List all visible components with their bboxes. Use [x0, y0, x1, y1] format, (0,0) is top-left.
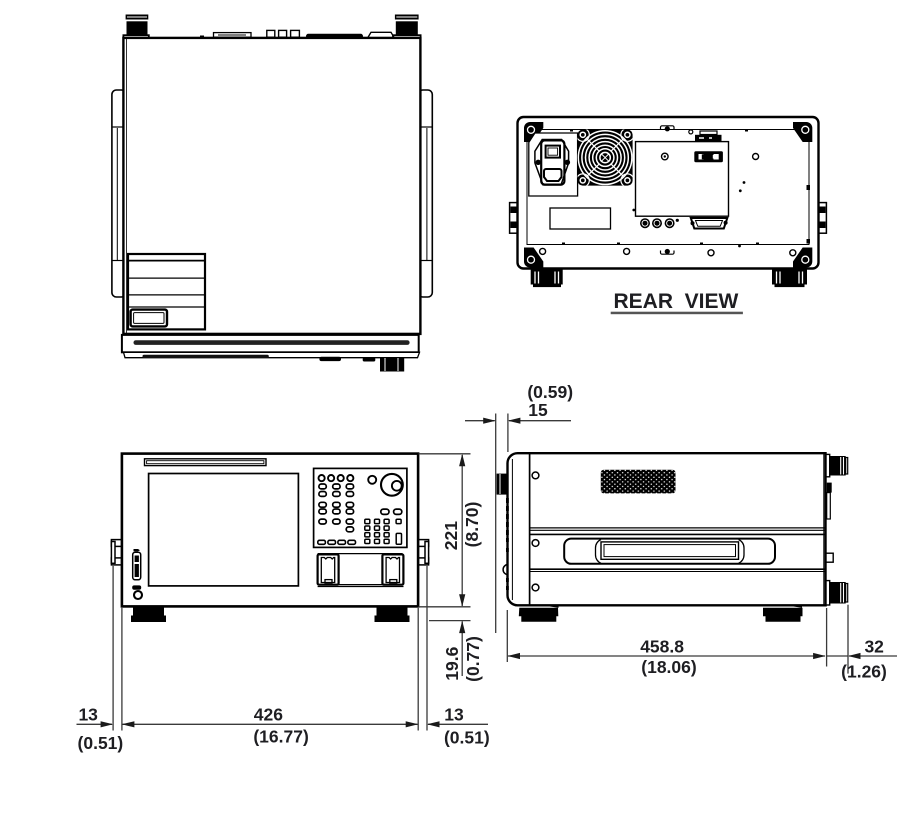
svg-text:426: 426 [254, 704, 283, 724]
svg-text:19.6: 19.6 [442, 646, 462, 680]
svg-text:(0.51): (0.51) [78, 733, 124, 753]
svg-text:15: 15 [528, 400, 548, 420]
svg-text:(8.70): (8.70) [462, 502, 482, 548]
svg-text:REAR VIEW: REAR VIEW [614, 290, 739, 313]
svg-text:13: 13 [78, 704, 98, 724]
svg-text:(1.26): (1.26) [841, 661, 887, 681]
svg-text:(0.51): (0.51) [444, 727, 490, 747]
svg-text:(18.06): (18.06) [641, 657, 696, 677]
svg-text:458.8: 458.8 [640, 636, 684, 656]
svg-text:(16.77): (16.77) [253, 726, 308, 746]
svg-text:221: 221 [441, 521, 461, 550]
svg-text:32: 32 [864, 636, 884, 656]
svg-text:(0.77): (0.77) [463, 636, 483, 682]
svg-text:(0.59): (0.59) [527, 382, 573, 402]
svg-text:13: 13 [444, 705, 464, 725]
